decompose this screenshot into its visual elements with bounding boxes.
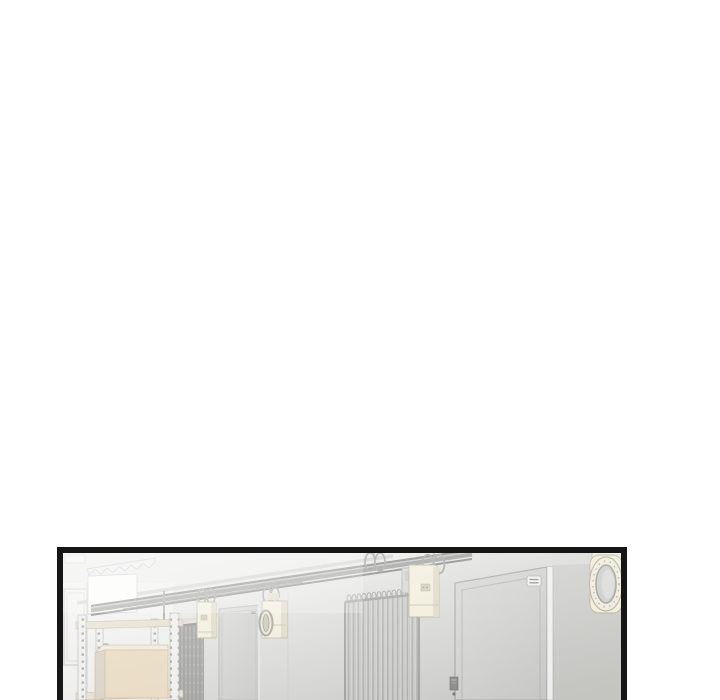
fade-overlay-topleft [63, 553, 363, 613]
page-background: { "page": { "background": "#ffffff" }, "… [0, 0, 720, 700]
comic-panel-frame [57, 547, 627, 700]
warehouse-scene [63, 553, 621, 700]
